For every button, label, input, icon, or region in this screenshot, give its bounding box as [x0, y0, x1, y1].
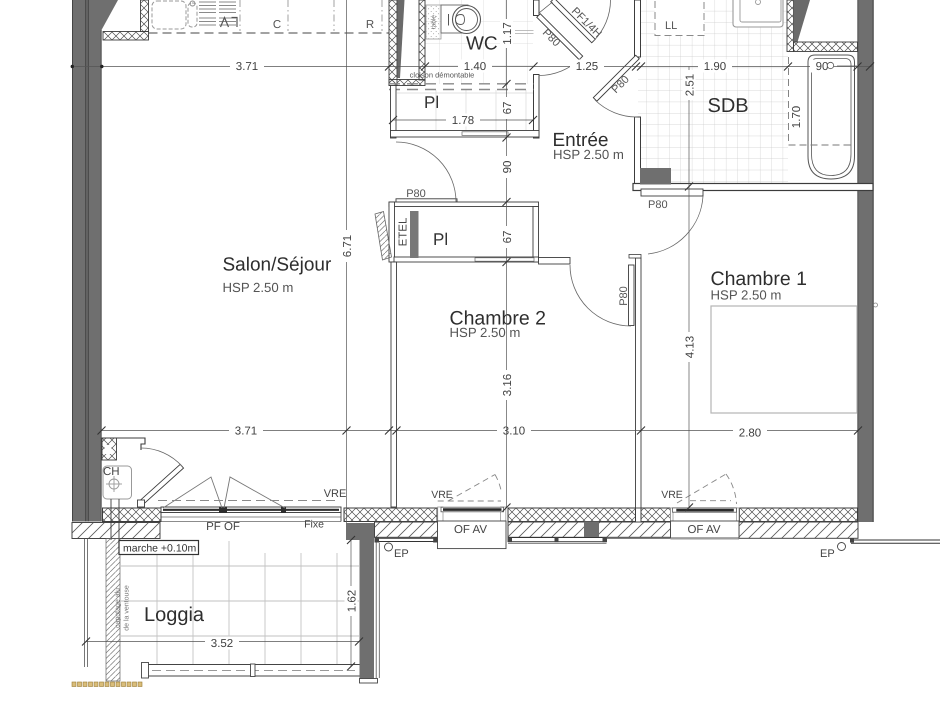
svg-text:HSP 2.50 m: HSP 2.50 m — [711, 288, 782, 303]
svg-text:1.70: 1.70 — [791, 106, 803, 128]
svg-text:Loggia: Loggia — [144, 604, 205, 626]
svg-text:capotage alu: capotage alu — [114, 588, 122, 628]
svg-text:3.71: 3.71 — [235, 426, 257, 438]
svg-text:OF AV: OF AV — [687, 524, 720, 536]
svg-text:1.25: 1.25 — [576, 61, 598, 73]
svg-text:PF OF: PF OF — [206, 521, 240, 533]
svg-text:4.13: 4.13 — [685, 336, 697, 358]
svg-text:P80: P80 — [618, 286, 630, 306]
svg-text:C: C — [273, 19, 281, 31]
svg-text:R: R — [366, 19, 374, 31]
svg-text:HSP 2.50 m: HSP 2.50 m — [223, 280, 294, 295]
svg-text:Pl: Pl — [424, 93, 439, 112]
svg-text:2.80: 2.80 — [739, 428, 761, 440]
svg-text:VRE: VRE — [324, 488, 347, 500]
svg-text:EP: EP — [820, 548, 835, 560]
svg-text:3.52: 3.52 — [211, 638, 233, 650]
svg-text:1.62: 1.62 — [347, 590, 359, 612]
svg-text:Fixe: Fixe — [304, 519, 324, 531]
svg-text:P80: P80 — [648, 199, 668, 211]
svg-text:67: 67 — [502, 102, 514, 115]
svg-text:OF AV: OF AV — [454, 524, 487, 536]
svg-text:CH: CH — [103, 466, 120, 478]
svg-text:1.90: 1.90 — [704, 61, 726, 73]
svg-text:LL: LL — [665, 20, 677, 32]
svg-text:1.17: 1.17 — [502, 22, 514, 44]
svg-text:Salon/Séjour: Salon/Séjour — [223, 255, 332, 276]
svg-text:EP: EP — [394, 548, 409, 560]
svg-text:90: 90 — [816, 61, 829, 73]
svg-text:HSP 2.50 m: HSP 2.50 m — [450, 325, 521, 340]
svg-text:table: table — [431, 15, 438, 29]
svg-text:1.78: 1.78 — [452, 115, 474, 127]
svg-text:HSP 2.50 m: HSP 2.50 m — [553, 147, 624, 162]
svg-text:2.51: 2.51 — [685, 74, 697, 96]
svg-text:de la ventouse: de la ventouse — [123, 585, 131, 631]
svg-text:67: 67 — [502, 231, 514, 244]
svg-text:3.71: 3.71 — [236, 61, 258, 73]
svg-text:3.16: 3.16 — [502, 374, 514, 396]
svg-text:ETEL: ETEL — [398, 217, 410, 246]
svg-text:WC: WC — [466, 34, 498, 55]
svg-text:P80: P80 — [406, 188, 426, 200]
svg-text:VRE: VRE — [661, 489, 683, 501]
svg-text:VRE: VRE — [431, 489, 453, 501]
svg-text:1.40: 1.40 — [464, 61, 486, 73]
svg-text:6.71: 6.71 — [342, 235, 354, 257]
svg-text:Pl: Pl — [433, 230, 448, 249]
svg-text:SDB: SDB — [708, 95, 749, 117]
svg-text:marche +0.10m: marche +0.10m — [123, 543, 196, 555]
svg-text:90: 90 — [502, 161, 514, 174]
